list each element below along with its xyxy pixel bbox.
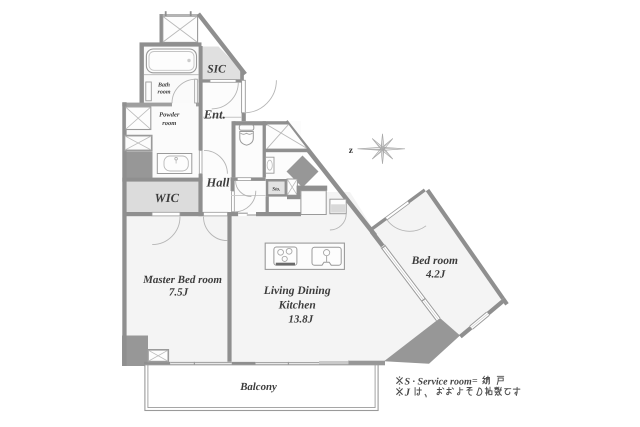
svg-text:Powder: Powder [159, 112, 180, 119]
svg-text:Hall: Hall [206, 176, 230, 190]
svg-text:WIC: WIC [155, 191, 180, 205]
svg-text:=: = [472, 376, 478, 387]
svg-text:SIC: SIC [207, 64, 226, 76]
svg-text:Master Bed room: Master Bed room [142, 274, 222, 286]
svg-text:room: room [162, 120, 176, 127]
svg-text:7.5J: 7.5J [169, 287, 189, 299]
svg-text:Bed room: Bed room [411, 255, 458, 267]
svg-text:J: J [404, 387, 411, 398]
svg-text:13.8J: 13.8J [288, 314, 313, 326]
svg-text:4.2J: 4.2J [425, 269, 446, 281]
svg-text:S · Service room: S · Service room [405, 377, 472, 388]
svg-text:Ent.: Ent. [203, 107, 226, 121]
svg-text:Kitchen: Kitchen [278, 300, 316, 312]
svg-text:Living Dining: Living Dining [263, 285, 331, 297]
svg-text:Sto.: Sto. [272, 187, 280, 193]
svg-text:room: room [157, 90, 170, 96]
svg-text:Balcony: Balcony [239, 381, 277, 393]
svg-text:Bath: Bath [157, 82, 171, 89]
